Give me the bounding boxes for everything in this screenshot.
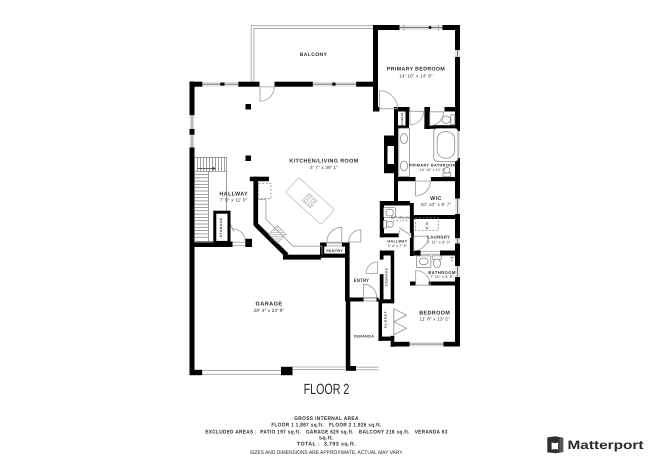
svg-text:SIZES AND DIMENSIONS ARE APPRO: SIZES AND DIMENSIONS ARE APPROXIMATE, AC… (250, 450, 404, 456)
svg-text:14' 10" x 14' 9": 14' 10" x 14' 9" (399, 73, 433, 78)
svg-text:EXCLUDED AREAS : PATIO 197 sq: EXCLUDED AREAS : PATIO 197 sq.ft. GARAGE… (205, 429, 447, 435)
svg-text:LAUNDRY: LAUNDRY (427, 235, 450, 240)
svg-text:ENTRY: ENTRY (354, 278, 370, 284)
svg-text:10' 10" x 12' 2": 10' 10" x 12' 2" (420, 168, 446, 172)
svg-text:11' 8" x 13' 2": 11' 8" x 13' 2" (419, 316, 450, 321)
svg-text:GARAGE: GARAGE (256, 302, 283, 308)
svg-text:VERANDA: VERANDA (354, 334, 375, 338)
svg-text:BATHROOM: BATHROOM (428, 270, 456, 275)
svg-text:STORAGE: STORAGE (401, 113, 404, 126)
svg-text:KITCHEN/LIVING ROOM: KITCHEN/LIVING ROOM (289, 159, 358, 165)
svg-text:GROSS INTERNAL AREA: GROSS INTERNAL AREA (294, 416, 359, 422)
svg-text:Matterport: Matterport (568, 438, 644, 452)
svg-text:TOTAL : 3,793 sq.ft.: TOTAL : 3,793 sq.ft. (297, 441, 356, 447)
svg-text:STORAGE: STORAGE (385, 268, 389, 287)
svg-text:PRIMARY BATHROOM: PRIMARY BATHROOM (409, 164, 456, 168)
svg-text:3' 7" x 39' 1": 3' 7" x 39' 1" (310, 165, 338, 170)
svg-text:28' 4" x 23' 9": 28' 4" x 23' 9" (254, 308, 285, 313)
svg-text:7' 0" x 11' 0": 7' 0" x 11' 0" (220, 198, 248, 203)
svg-text:PRIMARY BEDROOM: PRIMARY BEDROOM (387, 67, 445, 73)
svg-text:7' 11" x 6' 5": 7' 11" x 6' 5" (427, 240, 451, 244)
svg-text:BALCONY: BALCONY (300, 52, 328, 58)
svg-text:7' 11" x 4' 9": 7' 11" x 4' 9" (430, 275, 454, 279)
svg-text:PANTRY: PANTRY (326, 249, 343, 253)
svg-text:STORAGE: STORAGE (219, 218, 223, 238)
svg-text:HALLWAY: HALLWAY (387, 239, 407, 243)
svg-text:FLOOR 2: FLOOR 2 (304, 382, 350, 398)
svg-text:10' 10" x 6' 7": 10' 10" x 6' 7" (421, 202, 452, 207)
svg-text:FLOOR 1 1,867 sq.ft. FLOOR 2: FLOOR 1 1,867 sq.ft. FLOOR 2 1,926 sq.ft… (271, 423, 381, 429)
svg-text:CLOSET: CLOSET (383, 311, 387, 328)
svg-text:5' 4" x 7' 8": 5' 4" x 7' 8" (388, 244, 408, 248)
svg-text:4' 9" x 3' 9": 4' 9" x 3' 9" (393, 220, 408, 223)
